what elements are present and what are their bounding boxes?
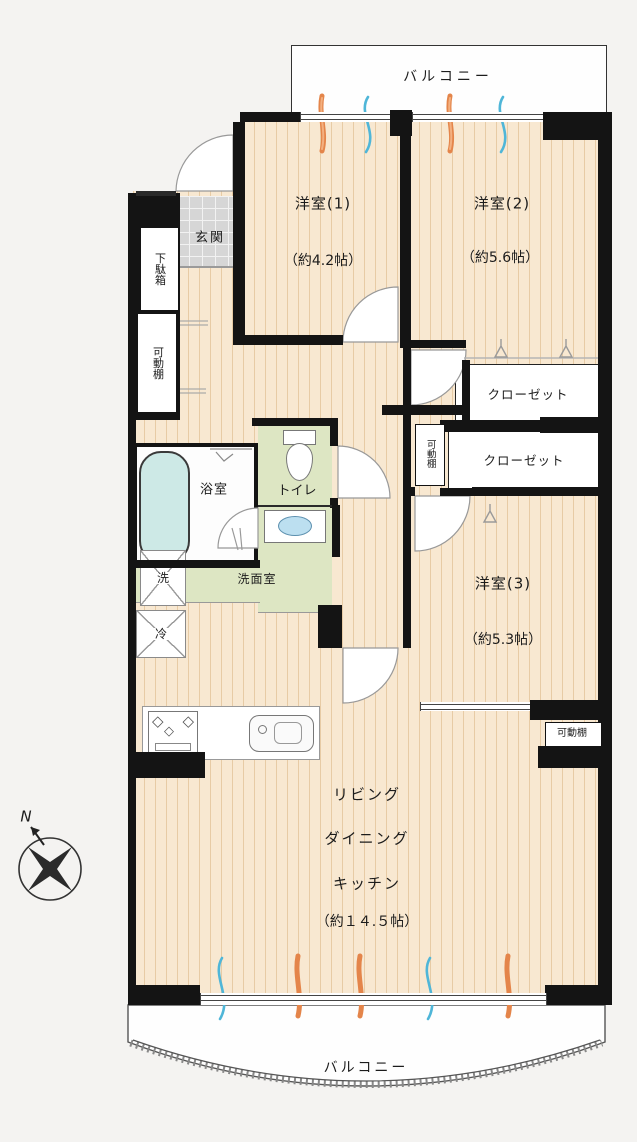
living-door-arc — [343, 648, 398, 703]
bedroom2-size: （約5.6帖） — [461, 251, 539, 265]
washroom-label: 洗面室 — [237, 573, 276, 585]
floor-plan: 洗 冷 ◇ ◇ ◇ — [0, 0, 637, 1142]
bedroom1-name: 洋室(1) — [295, 197, 351, 212]
toilet-door-arc — [338, 446, 390, 498]
plan-annotations — [0, 0, 637, 1142]
bedroom3-door-arc — [415, 496, 470, 551]
toilet-label: トイレ — [277, 485, 316, 498]
ldk-line3: キッチン — [333, 877, 401, 892]
ldk-line4: （約１４.５帖） — [316, 915, 418, 929]
bath-door-arc — [218, 508, 258, 548]
closet2-label: クローゼット — [483, 455, 564, 468]
bedroom1-size: （約4.2帖） — [284, 254, 362, 268]
sliding-door-bedroom3 — [420, 702, 534, 711]
wall-bedroom1-left — [233, 122, 245, 345]
compass-n-label: N — [20, 810, 31, 825]
bedroom3-size: （約5.3帖） — [464, 633, 542, 647]
bedroom2-door-arc — [411, 350, 466, 405]
bedroom3-name: 洋室(3) — [475, 577, 531, 592]
entrance-door-arc — [176, 135, 233, 191]
genkan-label: 玄関 — [195, 232, 225, 245]
wall-bedroom-divider — [400, 122, 411, 348]
shoe-cabinet-label: 下駄箱 — [155, 253, 166, 286]
ldk-line1: リビング — [333, 788, 401, 803]
window-living — [200, 993, 547, 1005]
wall-bottom — [128, 985, 200, 1005]
movable-shelf-left-label: 可動棚 — [153, 347, 164, 380]
wall-right — [598, 112, 612, 1005]
balcony-top-label: バルコニー — [403, 70, 493, 84]
ldk-line2: ダイニング — [324, 832, 409, 847]
window-bedroom2 — [412, 112, 545, 122]
compass-icon — [19, 827, 81, 900]
bedroom1-door-arc — [343, 287, 398, 342]
bedroom2-name: 洋室(2) — [474, 197, 530, 212]
movable-shelf-mid-label: 可動棚 — [425, 440, 435, 469]
closet1-label: クローゼット — [487, 389, 568, 402]
bath-label: 浴室 — [200, 484, 228, 497]
wall-bedroom1-bottom — [245, 335, 343, 345]
movable-shelf-right-label: 可動棚 — [557, 729, 587, 739]
wall-corridor-right — [403, 348, 411, 648]
window-bedroom1 — [300, 112, 392, 122]
balcony-bottom-label: バルコニー — [324, 1061, 409, 1075]
